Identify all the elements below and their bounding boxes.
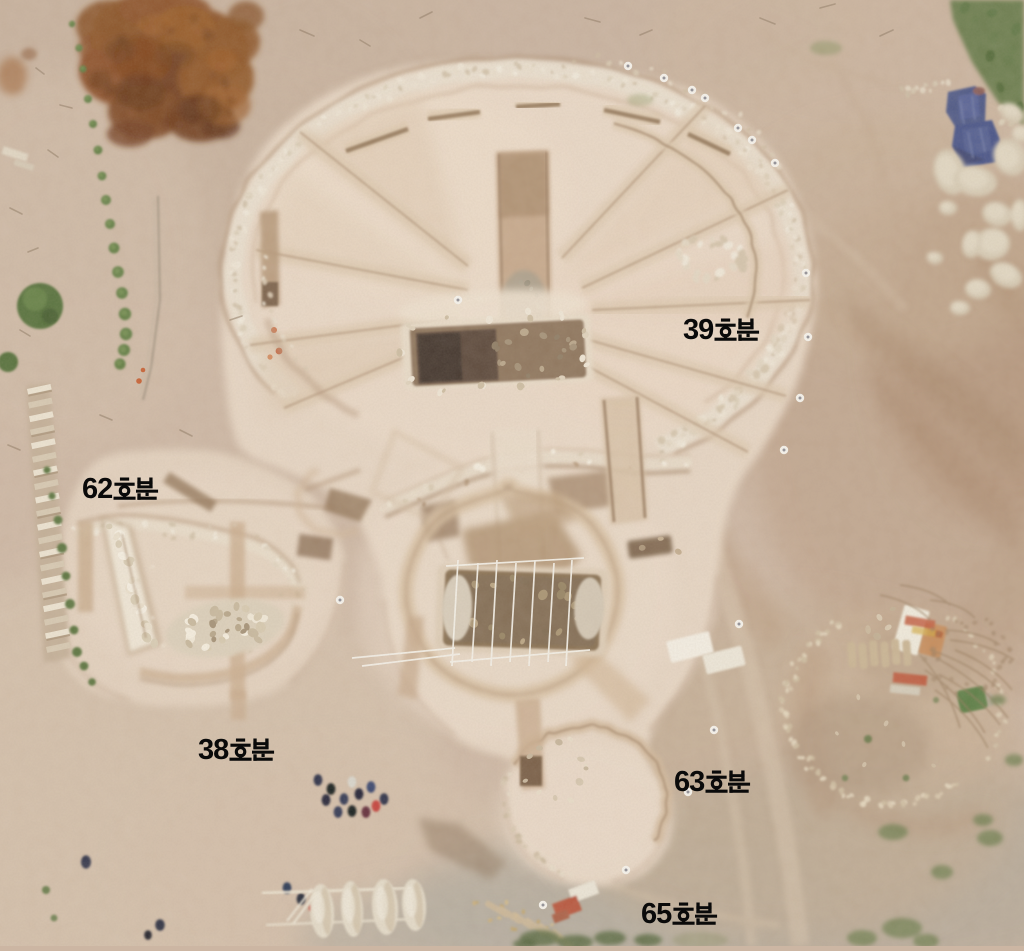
svg-text:38: 38 bbox=[198, 734, 229, 766]
svg-text:39: 39 bbox=[683, 314, 714, 346]
svg-text:65: 65 bbox=[641, 898, 672, 930]
svg-text:62: 62 bbox=[82, 473, 112, 505]
svg-text:63: 63 bbox=[674, 766, 705, 798]
